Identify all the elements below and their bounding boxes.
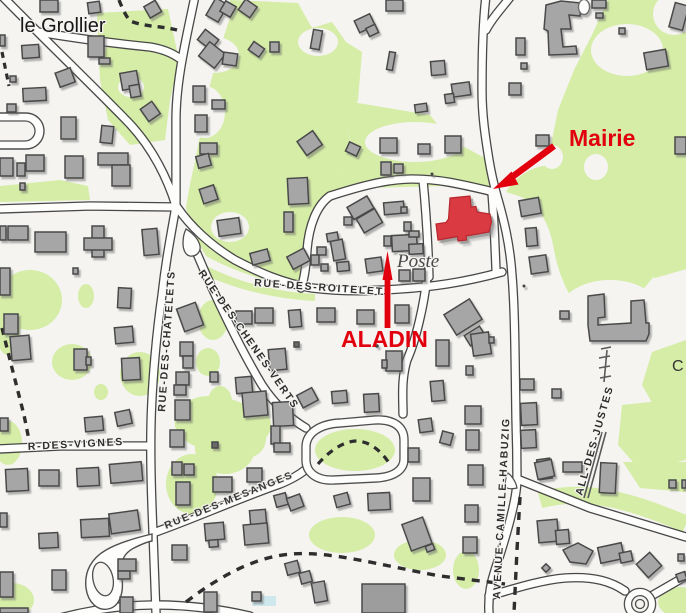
svg-text:C: C xyxy=(672,358,684,375)
svg-text:Mairie: Mairie xyxy=(569,125,635,151)
svg-text:ALADIN: ALADIN xyxy=(341,326,428,352)
svg-text:le Grollier: le Grollier xyxy=(20,15,106,37)
svg-text:Poste: Poste xyxy=(396,251,439,272)
